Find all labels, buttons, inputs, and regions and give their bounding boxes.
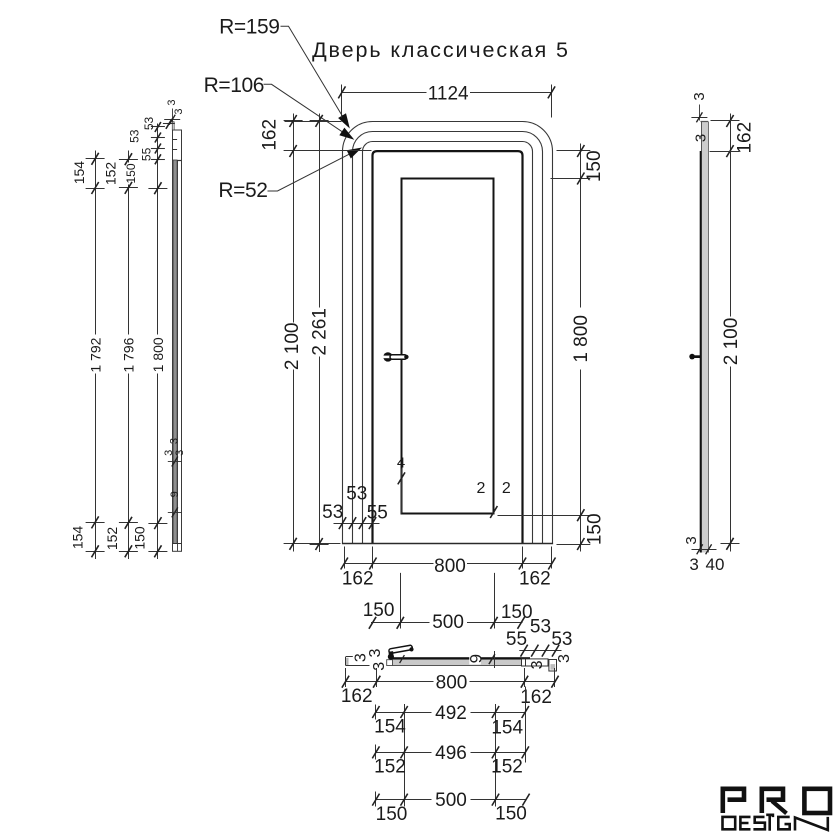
svg-text:1 800: 1 800 <box>150 337 166 372</box>
svg-text:3: 3 <box>166 99 178 105</box>
svg-text:3: 3 <box>173 108 185 114</box>
svg-text:152: 152 <box>104 527 120 551</box>
svg-text:53: 53 <box>127 129 141 143</box>
svg-text:154: 154 <box>491 717 523 738</box>
svg-text:3: 3 <box>693 134 710 142</box>
svg-text:3: 3 <box>371 662 388 671</box>
svg-text:150: 150 <box>495 803 527 824</box>
svg-text:162: 162 <box>341 686 373 707</box>
svg-text:9: 9 <box>466 654 485 663</box>
svg-text:162: 162 <box>734 122 755 154</box>
svg-text:492: 492 <box>435 703 467 724</box>
svg-text:162: 162 <box>519 569 551 590</box>
svg-text:R=106: R=106 <box>204 74 264 97</box>
svg-text:3: 3 <box>689 555 698 574</box>
svg-text:53: 53 <box>142 117 156 131</box>
svg-text:4: 4 <box>397 455 405 472</box>
svg-text:53: 53 <box>530 616 551 637</box>
svg-text:150: 150 <box>363 600 395 621</box>
svg-text:1124: 1124 <box>428 83 469 104</box>
svg-text:3: 3 <box>529 660 546 669</box>
svg-text:2: 2 <box>476 480 485 497</box>
svg-text:Дверь классическая 5: Дверь классическая 5 <box>312 38 570 62</box>
svg-text:55: 55 <box>139 147 153 161</box>
svg-text:3: 3 <box>174 450 186 456</box>
svg-text:150: 150 <box>584 150 605 182</box>
svg-text:R=52: R=52 <box>218 179 267 202</box>
svg-text:9: 9 <box>169 491 181 497</box>
svg-text:3: 3 <box>683 536 700 544</box>
svg-text:53: 53 <box>551 629 572 650</box>
svg-text:1 792: 1 792 <box>88 337 104 372</box>
svg-text:3: 3 <box>556 654 573 663</box>
svg-text:150: 150 <box>132 526 148 550</box>
svg-text:800: 800 <box>434 556 466 577</box>
svg-text:55: 55 <box>367 502 388 523</box>
svg-text:800: 800 <box>436 673 468 694</box>
svg-text:152: 152 <box>491 757 523 778</box>
svg-text:2 100: 2 100 <box>282 323 303 371</box>
svg-text:40: 40 <box>706 555 725 574</box>
svg-text:R=159: R=159 <box>219 16 279 39</box>
svg-text:150: 150 <box>124 163 138 183</box>
svg-text:150: 150 <box>501 602 533 623</box>
svg-text:496: 496 <box>435 743 467 764</box>
svg-text:3: 3 <box>168 438 180 444</box>
svg-text:150: 150 <box>376 804 408 825</box>
svg-text:55: 55 <box>506 629 527 650</box>
svg-text:154: 154 <box>70 526 86 550</box>
svg-text:162: 162 <box>259 119 280 151</box>
svg-text:154: 154 <box>374 716 406 737</box>
svg-text:2 261: 2 261 <box>309 308 330 356</box>
svg-text:152: 152 <box>374 757 406 778</box>
svg-text:3: 3 <box>691 92 708 100</box>
svg-text:2: 2 <box>502 480 511 497</box>
svg-text:162: 162 <box>342 569 374 590</box>
svg-text:1 800: 1 800 <box>571 315 592 363</box>
svg-text:3: 3 <box>367 649 384 658</box>
svg-text:500: 500 <box>432 612 464 633</box>
svg-text:53: 53 <box>346 483 367 504</box>
svg-text:500: 500 <box>435 790 467 811</box>
svg-text:150: 150 <box>584 513 605 545</box>
svg-text:53: 53 <box>322 502 343 523</box>
svg-text:2 100: 2 100 <box>721 318 742 366</box>
svg-text:154: 154 <box>71 161 87 185</box>
svg-text:1 796: 1 796 <box>121 337 137 372</box>
svg-text:152: 152 <box>103 162 119 186</box>
